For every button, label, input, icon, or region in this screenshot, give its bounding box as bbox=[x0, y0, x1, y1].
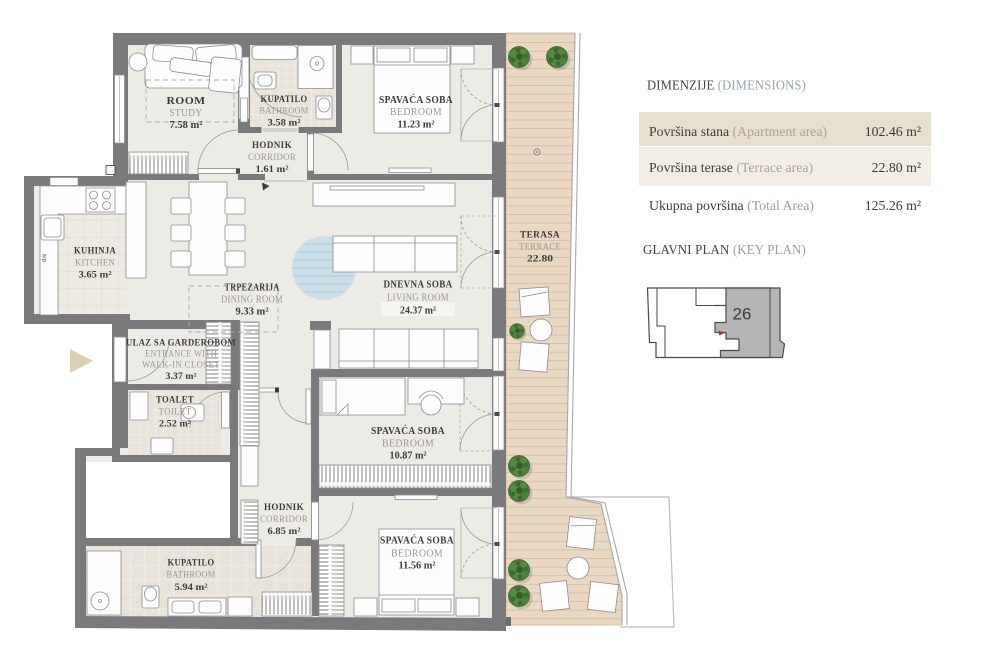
svg-text:24.37 m²: 24.37 m² bbox=[400, 306, 436, 317]
svg-text:KITCHEN: KITCHEN bbox=[75, 258, 115, 269]
svg-text:SPAVAĆA SOBA: SPAVAĆA SOBA bbox=[371, 425, 445, 437]
svg-text:SPAVAĆA SOBA: SPAVAĆA SOBA bbox=[379, 94, 453, 106]
svg-text:HODNIK: HODNIK bbox=[252, 140, 292, 151]
svg-text:LIVING ROOM: LIVING ROOM bbox=[387, 292, 449, 304]
svg-text:102.46 m²: 102.46 m² bbox=[865, 124, 921, 139]
svg-text:22.80: 22.80 bbox=[527, 254, 553, 265]
svg-text:Površina stana (Apartment area: Površina stana (Apartment area) bbox=[649, 124, 827, 140]
svg-text:BATHROOM: BATHROOM bbox=[260, 106, 309, 117]
svg-text:11.56 m²: 11.56 m² bbox=[399, 561, 436, 572]
svg-text:WALK-IN CLOSET: WALK-IN CLOSET bbox=[142, 361, 220, 371]
svg-text:BEDROOM: BEDROOM bbox=[391, 548, 443, 560]
svg-text:3.37 m²: 3.37 m² bbox=[166, 372, 197, 382]
svg-text:TOILET: TOILET bbox=[159, 407, 192, 418]
svg-text:TERRACE: TERRACE bbox=[519, 242, 561, 253]
svg-text:KUPATILO: KUPATILO bbox=[261, 94, 308, 105]
svg-text:3.58 m²: 3.58 m² bbox=[268, 118, 301, 129]
svg-text:Ukupna površina (Total Area): Ukupna površina (Total Area) bbox=[649, 198, 814, 214]
svg-text:SPAVAĆA SOBA: SPAVAĆA SOBA bbox=[380, 535, 454, 547]
svg-text:TERASA: TERASA bbox=[520, 230, 560, 241]
svg-text:ULAZ SA GARDEROBOM: ULAZ SA GARDEROBOM bbox=[126, 339, 236, 349]
svg-text:Površina terase (Terrace area): Površina terase (Terrace area) bbox=[649, 160, 813, 176]
svg-text:BEDROOM: BEDROOM bbox=[390, 106, 442, 118]
svg-text:CORRIDOR: CORRIDOR bbox=[260, 514, 308, 525]
svg-text:5.94 m²: 5.94 m² bbox=[175, 582, 208, 593]
svg-text:ENTRANCE WITH: ENTRANCE WITH bbox=[145, 350, 217, 360]
svg-text:3.65 m²: 3.65 m² bbox=[79, 270, 112, 281]
svg-text:BATHROOM: BATHROOM bbox=[167, 570, 216, 581]
svg-text:22.80 m²: 22.80 m² bbox=[872, 160, 921, 175]
svg-text:26: 26 bbox=[733, 305, 752, 324]
svg-text:11.23 m²: 11.23 m² bbox=[398, 120, 435, 131]
svg-text:TRPEZARIJA: TRPEZARIJA bbox=[225, 282, 280, 294]
svg-text:7.58 m²: 7.58 m² bbox=[170, 120, 203, 131]
svg-text:BEDROOM: BEDROOM bbox=[382, 438, 434, 450]
svg-text:dw: dw bbox=[41, 254, 48, 263]
svg-text:CORRIDOR: CORRIDOR bbox=[248, 152, 296, 163]
svg-text:DINING ROOM: DINING ROOM bbox=[221, 294, 283, 306]
svg-text:TOALET: TOALET bbox=[156, 395, 194, 406]
svg-text:GLAVNI PLAN (KEY PLAN): GLAVNI PLAN (KEY PLAN) bbox=[643, 242, 806, 257]
svg-text:9.33 m²: 9.33 m² bbox=[236, 307, 269, 318]
svg-text:KUPATILO: KUPATILO bbox=[168, 558, 215, 569]
svg-text:10.87 m²: 10.87 m² bbox=[390, 451, 427, 462]
svg-text:125.26 m²: 125.26 m² bbox=[865, 198, 921, 213]
svg-text:HODNIK: HODNIK bbox=[264, 502, 304, 513]
svg-text:KUHINJA: KUHINJA bbox=[74, 246, 116, 257]
svg-text:STUDY: STUDY bbox=[170, 107, 203, 119]
svg-text:ROOM: ROOM bbox=[167, 95, 206, 107]
svg-text:DNEVNA SOBA: DNEVNA SOBA bbox=[384, 279, 453, 291]
svg-text:2.52 m²: 2.52 m² bbox=[159, 419, 191, 430]
svg-text:DIMENZIJE (DIMENSIONS): DIMENZIJE (DIMENSIONS) bbox=[647, 78, 806, 93]
svg-text:1.61 m²: 1.61 m² bbox=[256, 164, 289, 175]
svg-text:6.85 m²: 6.85 m² bbox=[268, 526, 301, 537]
